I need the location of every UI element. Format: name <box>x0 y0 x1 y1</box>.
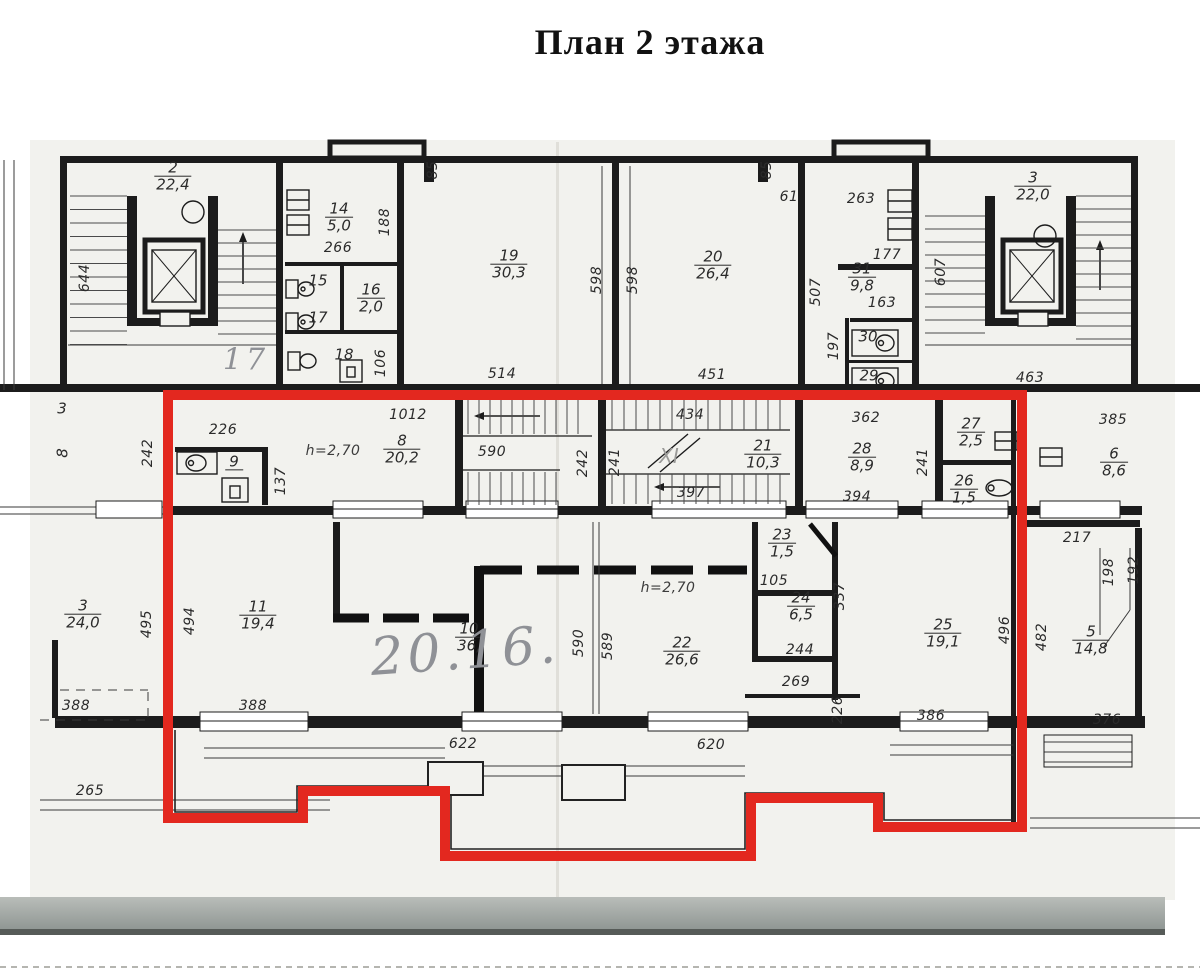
scan-page-edge <box>0 897 1165 930</box>
scan-edge-shadow <box>0 929 1165 935</box>
plan-drawing <box>0 0 1200 971</box>
scan-crease <box>556 142 559 898</box>
balcony-pier <box>562 765 625 800</box>
scanned-floor-plan-page: План 2 этажа <box>0 0 1200 971</box>
